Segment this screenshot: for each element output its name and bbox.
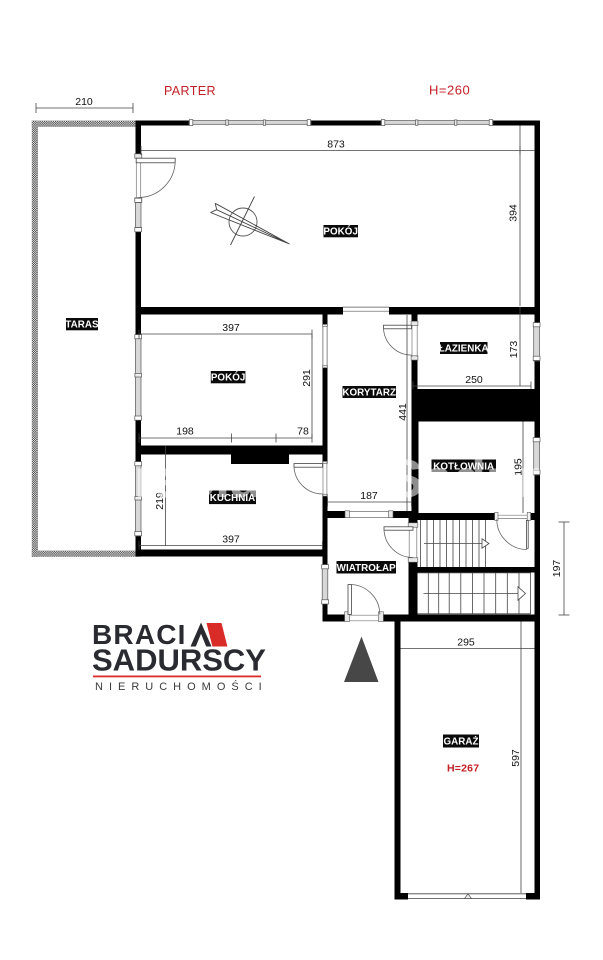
svg-text:873: 873	[327, 139, 345, 151]
svg-text:250: 250	[465, 374, 483, 386]
svg-text:POKÓJ: POKÓJ	[211, 372, 246, 384]
svg-text:H=260: H=260	[429, 83, 470, 98]
svg-text:441: 441	[397, 403, 409, 421]
svg-text:NIERUCHOMOŚCI: NIERUCHOMOŚCI	[95, 680, 268, 693]
svg-text:173: 173	[508, 341, 520, 359]
svg-text:WIATROŁAP: WIATROŁAP	[337, 563, 396, 574]
svg-text:210: 210	[75, 96, 93, 108]
svg-text:197: 197	[551, 560, 563, 578]
svg-text:Bracia: Bracia	[95, 449, 261, 509]
svg-text:78: 78	[297, 426, 309, 438]
svg-text:TARAS: TARAS	[65, 320, 99, 331]
svg-text:187: 187	[360, 490, 378, 502]
svg-text:ŁAZIENKA: ŁAZIENKA	[439, 344, 489, 355]
svg-text:397: 397	[222, 322, 240, 334]
svg-text:GARAŻ: GARAŻ	[443, 737, 478, 748]
svg-text:H=267: H=267	[447, 763, 479, 775]
svg-text:198: 198	[176, 426, 194, 438]
svg-text:SADURSCY: SADURSCY	[92, 643, 266, 678]
svg-text:597: 597	[510, 749, 522, 767]
svg-text:295: 295	[457, 637, 475, 649]
svg-text:KORYTARZ: KORYTARZ	[342, 388, 396, 399]
svg-text:394: 394	[508, 204, 520, 222]
svg-text:POKÓJ: POKÓJ	[323, 226, 358, 238]
svg-text:291: 291	[301, 369, 313, 387]
svg-text:PARTER: PARTER	[164, 84, 216, 98]
svg-text:Sadurscy: Sadurscy	[387, 449, 603, 509]
svg-text:397: 397	[222, 534, 240, 546]
